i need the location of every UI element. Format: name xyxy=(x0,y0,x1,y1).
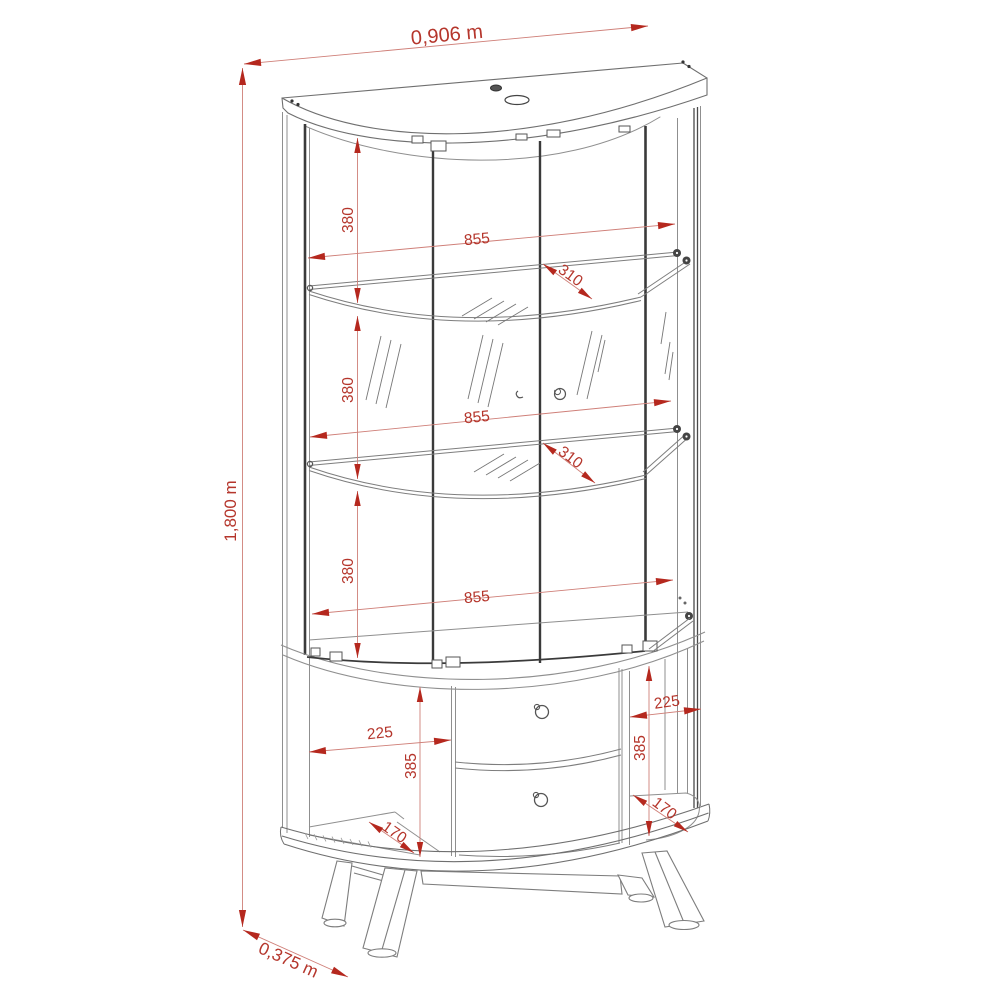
svg-text:380: 380 xyxy=(340,207,357,233)
svg-text:1,800 m: 1,800 m xyxy=(221,480,240,541)
svg-text:855: 855 xyxy=(463,588,490,607)
svg-text:385: 385 xyxy=(403,753,420,779)
svg-text:855: 855 xyxy=(463,408,490,427)
svg-text:385: 385 xyxy=(632,735,649,761)
svg-text:225: 225 xyxy=(366,724,394,744)
svg-text:380: 380 xyxy=(340,377,357,403)
svg-text:225: 225 xyxy=(653,692,681,712)
svg-text:380: 380 xyxy=(340,558,357,584)
svg-text:855: 855 xyxy=(463,230,490,249)
